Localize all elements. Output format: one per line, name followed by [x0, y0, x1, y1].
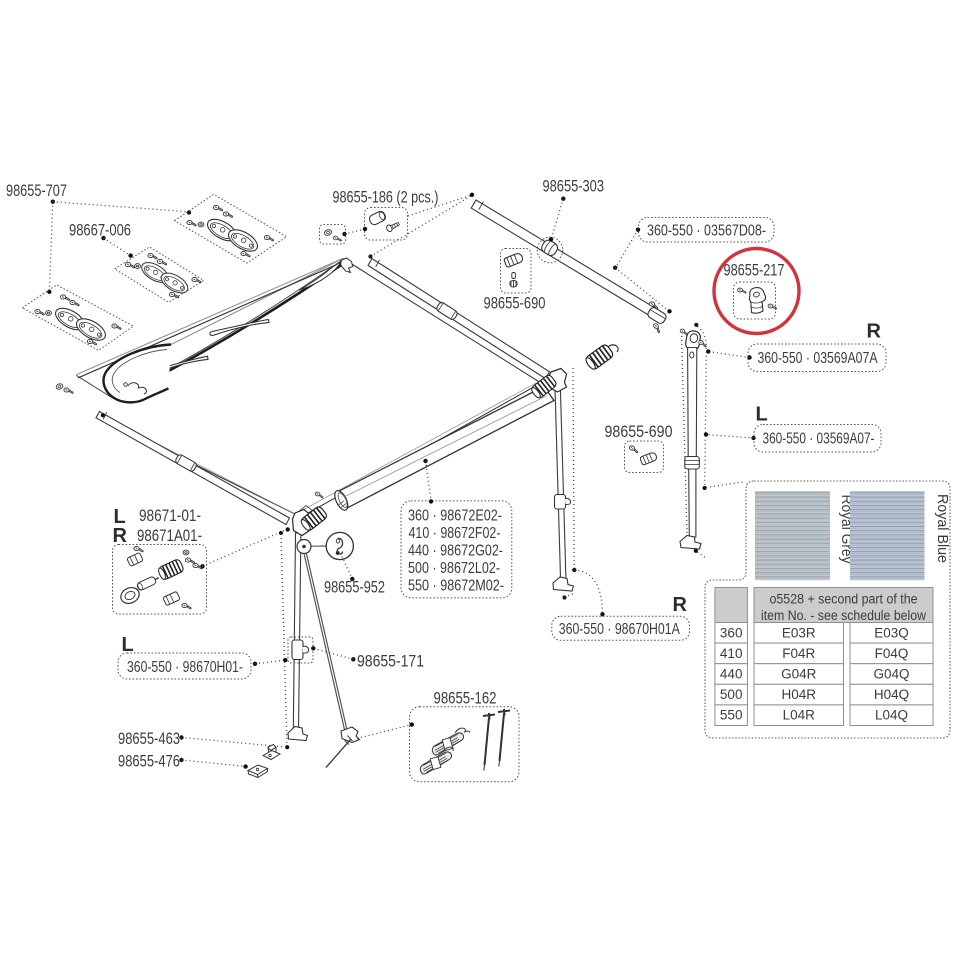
svg-text:360-550 · 03569A07-: 360-550 · 03569A07-	[763, 431, 875, 448]
svg-text:500 · 98672L02-: 500 · 98672L02-	[408, 560, 500, 577]
svg-text:R: R	[113, 525, 128, 547]
svg-text:440 · 98672G02-: 440 · 98672G02-	[408, 543, 503, 560]
svg-text:98655-171: 98655-171	[357, 652, 424, 671]
svg-text:L04R: L04R	[783, 708, 816, 723]
svg-text:G04Q: G04Q	[873, 667, 909, 682]
svg-text:98655-463: 98655-463	[118, 729, 180, 748]
svg-text:98655-690: 98655-690	[484, 294, 546, 313]
svg-text:98655-217: 98655-217	[724, 261, 785, 280]
svg-text:F04Q: F04Q	[875, 646, 909, 661]
svg-text:E03Q: E03Q	[874, 625, 909, 640]
svg-text:item No. - see schedule below: item No. - see schedule below	[761, 608, 926, 623]
svg-text:98667-006: 98667-006	[69, 221, 131, 240]
svg-text:440: 440	[720, 667, 743, 682]
svg-text:360-550 · 98670H01A: 360-550 · 98670H01A	[559, 621, 680, 638]
svg-text:H04Q: H04Q	[874, 687, 909, 702]
svg-text:98655-707: 98655-707	[6, 181, 67, 200]
svg-text:E03R: E03R	[782, 625, 816, 640]
svg-text:550: 550	[720, 708, 743, 723]
svg-text:410 · 98672F02-: 410 · 98672F02-	[409, 525, 501, 542]
svg-text:R: R	[673, 594, 688, 616]
svg-text:o5528 + second part of the: o5528 + second part of the	[770, 592, 918, 607]
svg-text:98655-186 (2 pcs.): 98655-186 (2 pcs.)	[333, 188, 439, 207]
svg-text:500: 500	[720, 687, 743, 702]
svg-text:G04R: G04R	[781, 667, 817, 682]
svg-text:360-550 · 03567D08-: 360-550 · 03567D08-	[647, 223, 766, 240]
svg-text:360: 360	[720, 625, 743, 640]
svg-text:L: L	[756, 404, 768, 426]
svg-text:360 · 98672E02-: 360 · 98672E02-	[408, 507, 502, 524]
svg-text:98655-952: 98655-952	[324, 578, 385, 597]
svg-text:410: 410	[720, 646, 743, 661]
svg-text:98671-01-: 98671-01-	[139, 506, 201, 525]
svg-text:98655-476: 98655-476	[118, 752, 180, 771]
svg-text:98671A01-: 98671A01-	[137, 526, 202, 545]
svg-text:360-550 · 98670H01-: 360-550 · 98670H01-	[127, 659, 243, 676]
svg-text:H04R: H04R	[782, 687, 817, 702]
svg-text:550 · 98672M02-: 550 · 98672M02-	[408, 578, 504, 595]
svg-text:L04Q: L04Q	[875, 708, 908, 723]
svg-text:R: R	[867, 321, 882, 343]
svg-text:F04R: F04R	[782, 646, 815, 661]
svg-text:360-550 · 03569A07A: 360-550 · 03569A07A	[758, 350, 878, 367]
svg-text:98655-690: 98655-690	[605, 422, 673, 441]
svg-text:Royal Blue: Royal Blue	[934, 494, 951, 563]
svg-text:98655-162: 98655-162	[434, 689, 497, 708]
svg-text:98655-303: 98655-303	[543, 177, 605, 196]
